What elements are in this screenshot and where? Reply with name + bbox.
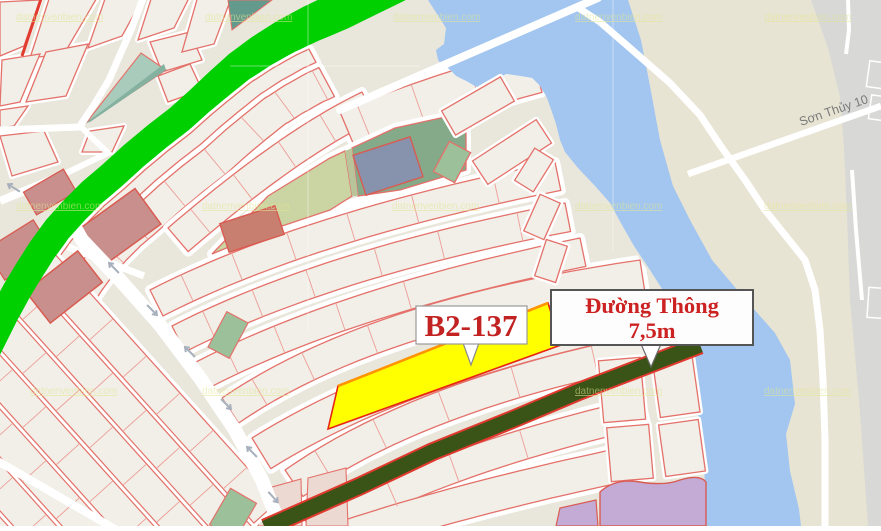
- svg-text:datnenvenbien.com: datnenvenbien.com: [764, 386, 851, 397]
- svg-text:datnenvenbien.com: datnenvenbien.com: [205, 12, 292, 23]
- svg-text:Đường Thông: Đường Thông: [585, 293, 719, 318]
- svg-text:datnenvenbien.com: datnenvenbien.com: [30, 386, 117, 397]
- svg-text:datnenvenbien.com: datnenvenbien.com: [575, 201, 662, 212]
- svg-text:datnenvenbien.com: datnenvenbien.com: [202, 386, 289, 397]
- svg-text:datnenvenbien.com: datnenvenbien.com: [764, 201, 851, 212]
- svg-text:datnenvenbien.com: datnenvenbien.com: [575, 386, 662, 397]
- svg-text:datnenvenbien.com: datnenvenbien.com: [393, 12, 480, 23]
- svg-text:datnenvenbien.com: datnenvenbien.com: [575, 12, 662, 23]
- svg-text:datnenvenbien.com: datnenvenbien.com: [392, 201, 479, 212]
- svg-text:datnenvenbien.com: datnenvenbien.com: [16, 201, 103, 212]
- svg-text:datnenvenbien.com: datnenvenbien.com: [764, 12, 851, 23]
- svg-text:7,5m: 7,5m: [629, 318, 676, 343]
- svg-text:datnenvenbien.com: datnenvenbien.com: [202, 201, 289, 212]
- svg-text:B2-137: B2-137: [425, 308, 518, 343]
- svg-text:datnenvenbien.com: datnenvenbien.com: [16, 12, 103, 23]
